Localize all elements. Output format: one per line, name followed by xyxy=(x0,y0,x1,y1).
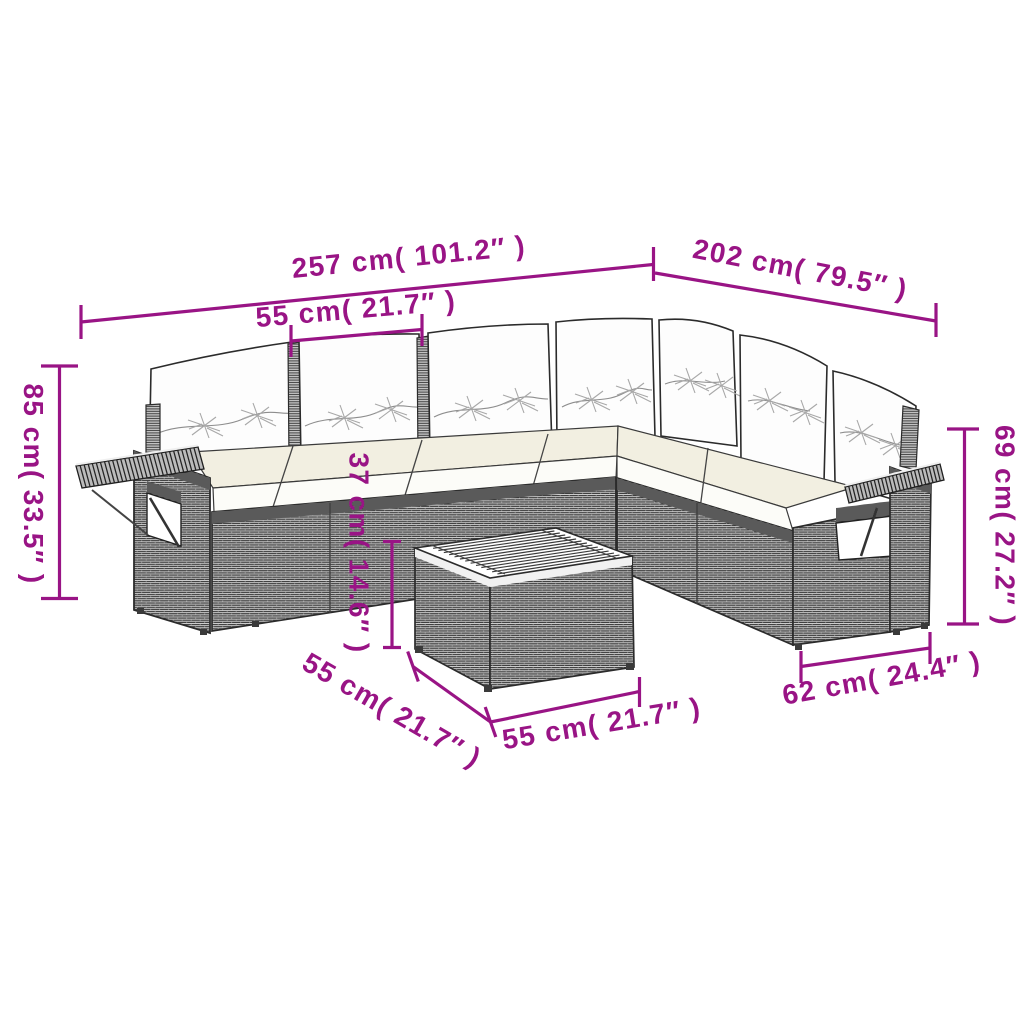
svg-text:37 cm( 14.6″ ): 37 cm( 14.6″ ) xyxy=(344,452,375,653)
svg-text:69 cm( 27.2″ ): 69 cm( 27.2″ ) xyxy=(990,425,1021,626)
svg-text:85 cm( 33.5″ ): 85 cm( 33.5″ ) xyxy=(18,383,49,584)
